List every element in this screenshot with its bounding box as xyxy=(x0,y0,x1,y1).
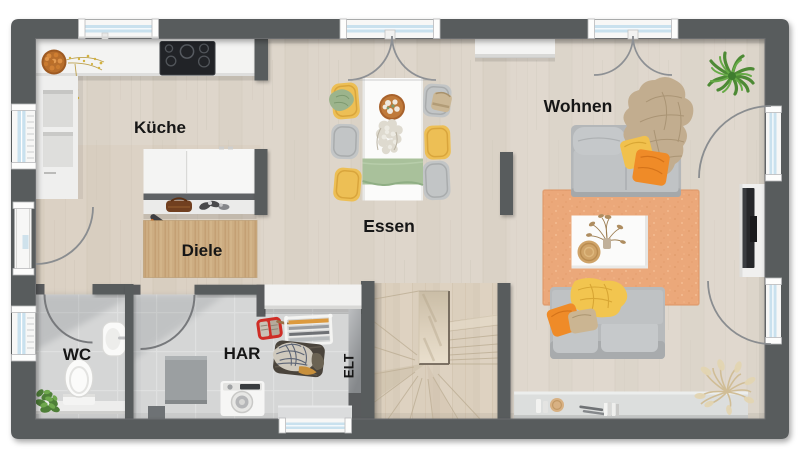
svg-text:Küche: Küche xyxy=(134,118,186,137)
svg-text:ELT: ELT xyxy=(342,353,357,378)
svg-text:WC: WC xyxy=(63,345,91,364)
svg-text:HAR: HAR xyxy=(224,344,261,363)
svg-text:Wohnen: Wohnen xyxy=(544,96,613,116)
svg-text:Diele: Diele xyxy=(182,241,223,260)
svg-text:Essen: Essen xyxy=(363,216,415,236)
